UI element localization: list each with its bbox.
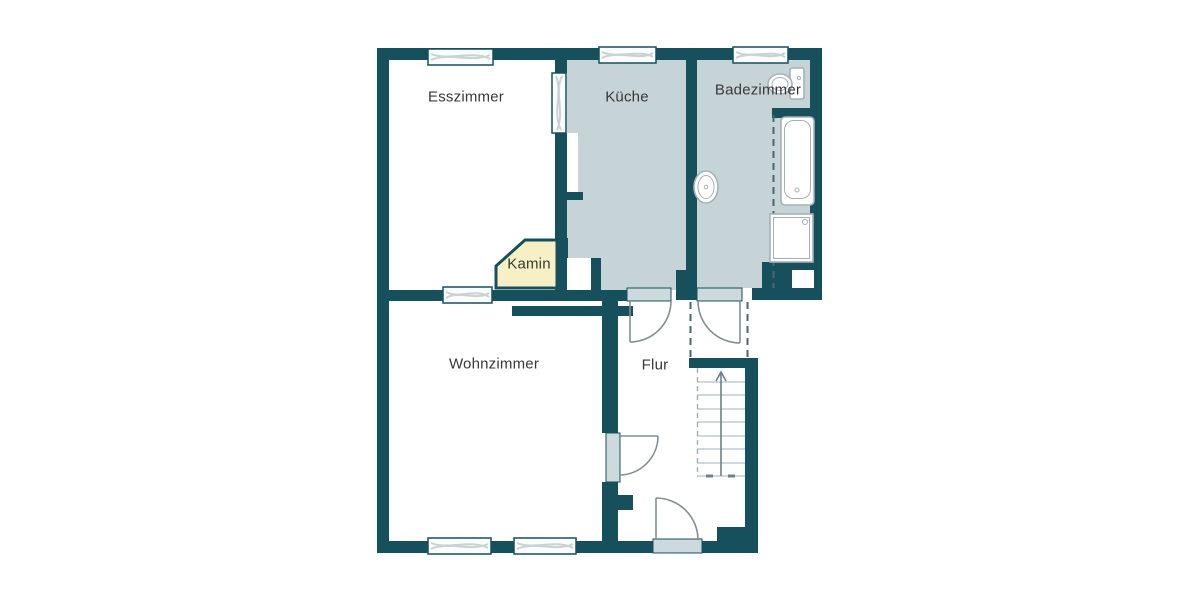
wall-kueche-sw-stub <box>591 258 601 301</box>
floorplan-canvas: Esszimmer Küche Badezimmer Kamin Wohnzim… <box>0 0 1200 600</box>
room-label-flur: Flur <box>642 357 669 374</box>
window-esszimmer-wohnzimmer <box>443 287 492 303</box>
wall-stairs-right <box>745 358 758 541</box>
staircase-up-icon <box>697 368 745 477</box>
wall-wohn-flur-lower <box>602 482 618 541</box>
door-threshold-kueche <box>627 288 671 301</box>
room-label-kueche: Küche <box>605 89 649 106</box>
room-label-kamin: Kamin <box>507 256 551 273</box>
floorplan-drawing <box>0 0 1200 600</box>
door-entrance <box>656 498 698 540</box>
shower-icon <box>770 214 813 262</box>
room-label-wohnzimmer: Wohnzimmer <box>449 356 539 373</box>
wall-kueche-bad-stub <box>676 270 697 300</box>
door-threshold-entrance <box>653 539 702 553</box>
wall-left <box>377 48 389 553</box>
door-kueche-flur <box>630 301 671 342</box>
bathtub-icon <box>781 117 814 205</box>
door-threshold-wohnzimmer <box>606 433 620 482</box>
washbasin-icon <box>694 171 718 203</box>
window-badezimmer-top <box>733 47 788 63</box>
room-label-badezimmer: Badezimmer <box>715 82 801 99</box>
window-esszimmer-top <box>428 49 493 65</box>
wall-niche-cap <box>567 192 583 200</box>
window-esszimmer-kueche <box>552 73 566 133</box>
door-wohnzimmer-flur <box>619 436 658 475</box>
window-wohnzimmer-bottom-left <box>428 538 491 554</box>
kueche-sw-niche <box>567 258 591 290</box>
wall-wohn-flur-upper <box>602 301 618 433</box>
kueche-west-niche <box>567 133 578 192</box>
window-kueche-top <box>599 47 656 63</box>
door-threshold-badezimmer <box>697 288 742 301</box>
window-wohnzimmer-bottom-right <box>514 538 576 554</box>
wall-kamin-right <box>558 238 568 301</box>
room-label-esszimmer: Esszimmer <box>428 89 504 106</box>
door-badezimmer-flur <box>698 301 740 343</box>
wall-bottom-right-step <box>717 527 758 541</box>
bad-corner-niche <box>792 270 814 288</box>
wall-ess-kueche-upper <box>555 60 567 73</box>
wall-flur-stub <box>618 495 633 510</box>
